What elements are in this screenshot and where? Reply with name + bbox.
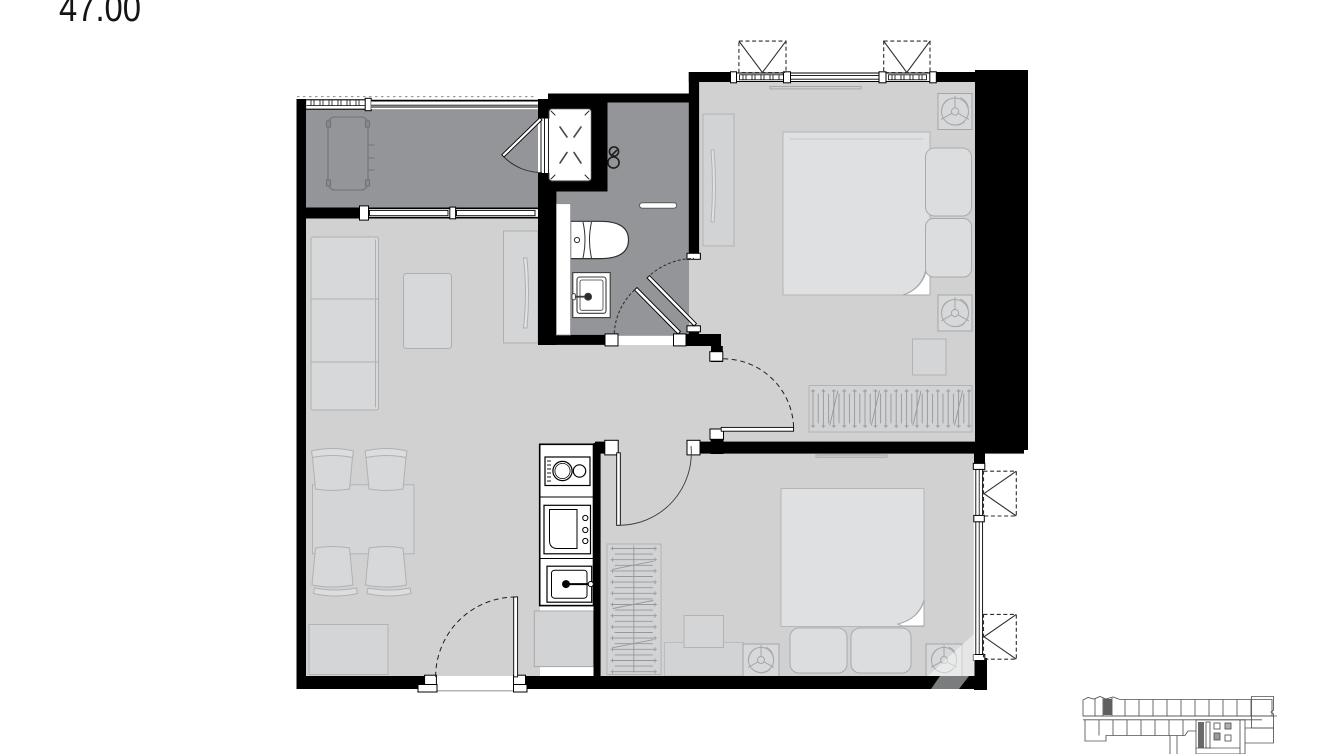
svg-text:47.00: 47.00 <box>59 0 141 30</box>
